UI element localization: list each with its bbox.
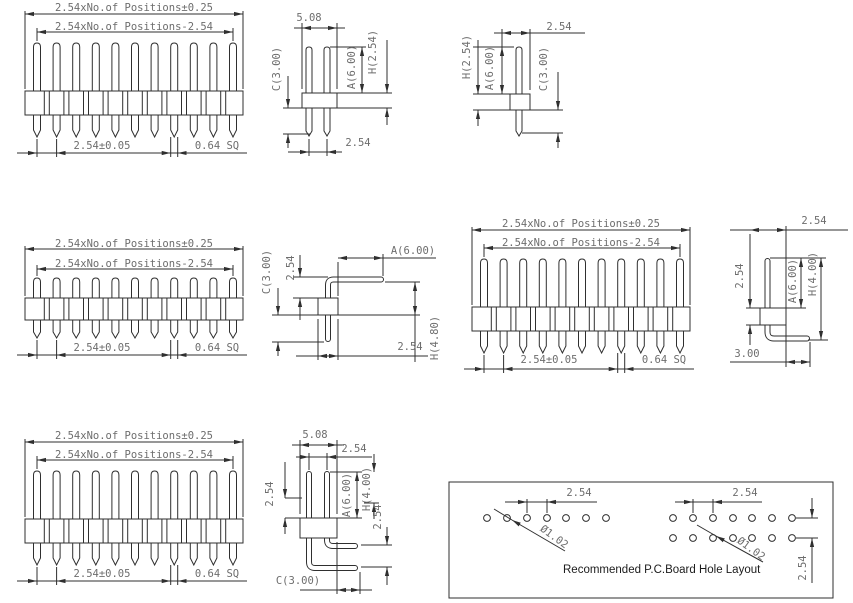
dim-label-row-pitch: 2.54 bbox=[797, 555, 809, 580]
dim-label-tail: 3.00 bbox=[734, 348, 759, 360]
insulator-body bbox=[510, 94, 530, 110]
hole bbox=[524, 515, 531, 522]
pcb-hole-layout: 2.54 Ø1.02 2.54 Ø1.02 2.54 Recommended P… bbox=[449, 482, 833, 598]
dim-label-inner: 2.54xNo.of Positions-2.54 bbox=[55, 258, 213, 270]
hole bbox=[484, 515, 491, 522]
side-view-right-angle-single: 2.54 2.54 A(6.00) H(4.00) 3.00 bbox=[730, 215, 848, 367]
dim-label-pitch: 2.54 bbox=[566, 487, 591, 499]
single-row-hole-pattern: 2.54 Ø1.02 bbox=[484, 487, 610, 551]
dim-label-h: H(2.54) bbox=[461, 35, 473, 79]
dim-label-a: A(6.00) bbox=[341, 473, 353, 517]
dim-label-right: 2.54 bbox=[372, 504, 384, 529]
hole bbox=[710, 515, 717, 522]
dim-label-a: A(6.00) bbox=[484, 46, 496, 90]
layout-border bbox=[449, 482, 833, 598]
insulator-body bbox=[760, 308, 786, 325]
dim-label-h: H(4.80) bbox=[429, 316, 441, 360]
dim-label-pitch: 2.54 bbox=[345, 137, 370, 149]
hole bbox=[789, 515, 796, 522]
hole bbox=[670, 535, 677, 542]
dim-label-overall: 2.54xNo.of Positions±0.25 bbox=[55, 2, 213, 14]
hole bbox=[603, 515, 610, 522]
hole bbox=[563, 515, 570, 522]
dim-label-width: 5.08 bbox=[302, 429, 327, 441]
hole bbox=[670, 515, 677, 522]
hole bbox=[583, 515, 590, 522]
dim-label-body: 2.54 bbox=[397, 341, 422, 353]
dim-label-pitch: 2.54 bbox=[546, 21, 571, 33]
hole bbox=[730, 515, 737, 522]
datasheet-page: 2.54xNo.of Positions±0.25 2.54xNo.of Pos… bbox=[0, 0, 853, 603]
dim-label-pitch: 2.54±0.05 bbox=[74, 342, 131, 354]
front-view-top: 2.54xNo.of Positions±0.25 2.54xNo.of Pos… bbox=[17, 2, 247, 157]
dim-label-pin-sq: 0.64 SQ bbox=[195, 140, 239, 152]
dim-label-overall: 2.54xNo.of Positions±0.25 bbox=[55, 430, 213, 442]
dim-label-inner: 2.54xNo.of Positions-2.54 bbox=[55, 449, 213, 461]
front-view-middle: 2.54xNo.of Positions±0.25 2.54xNo.of Pos… bbox=[17, 238, 247, 359]
dim-label-pitch: 2.54±0.05 bbox=[74, 140, 131, 152]
side-view-straight-single: 2.54 H(2.54) A(6.00) C(3.00) bbox=[461, 21, 585, 148]
dim-label-h: H(2.54) bbox=[367, 30, 379, 74]
dim-label-pin-sq: 0.64 SQ bbox=[195, 568, 239, 580]
hole bbox=[690, 515, 697, 522]
dim-label-overall: 2.54xNo.of Positions±0.25 bbox=[55, 238, 213, 250]
insulator-body bbox=[300, 518, 337, 538]
hole bbox=[749, 515, 756, 522]
hole bbox=[769, 515, 776, 522]
dim-label-c: C(3.00) bbox=[271, 47, 283, 91]
dim-label-inner: 2.54xNo.of Positions-2.54 bbox=[55, 21, 213, 33]
dim-label-riser: 2.54 bbox=[285, 255, 297, 280]
dim-label-a: A(6.00) bbox=[346, 45, 358, 89]
dim-label-c: C(3.00) bbox=[276, 575, 320, 587]
dim-label-pitch: 2.54±0.05 bbox=[521, 354, 578, 366]
dim-label-pin-sq: 0.64 SQ bbox=[642, 354, 686, 366]
insulator-body bbox=[302, 93, 337, 108]
dim-label-c: C(3.00) bbox=[538, 47, 550, 91]
dim-label-a: A(6.00) bbox=[391, 245, 435, 257]
dim-label-h: H(4.00) bbox=[807, 252, 819, 296]
dim-label-c: C(3.00) bbox=[261, 250, 273, 294]
dim-label-overall: 2.54xNo.of Positions±0.25 bbox=[502, 218, 660, 230]
dim-label-body: 2.54 bbox=[734, 263, 746, 288]
dim-label-pitch: 2.54 bbox=[732, 487, 757, 499]
hole bbox=[544, 515, 551, 522]
pin bbox=[516, 47, 522, 136]
side-view-right-angle-dual: 5.08 2.54 2.54 A(6.00) H(4.00) 2.54 C(3.… bbox=[264, 429, 392, 594]
dim-label-left: 2.54 bbox=[264, 481, 276, 506]
hole bbox=[690, 535, 697, 542]
pin bbox=[306, 47, 312, 136]
insulator-body bbox=[318, 298, 338, 315]
dim-label-row: 2.54 bbox=[341, 443, 366, 455]
dim-label-inner: 2.54xNo.of Positions-2.54 bbox=[502, 237, 660, 249]
front-view-middle-right: 2.54xNo.of Positions±0.25 2.54xNo.of Pos… bbox=[464, 218, 694, 373]
side-view-straight: 5.08 A(6.00) H(2.54) C(3.00) 2.54 bbox=[271, 12, 392, 156]
front-view-bottom: 2.54xNo.of Positions±0.25 2.54xNo.of Pos… bbox=[17, 430, 247, 585]
dim-label-top: 2.54 bbox=[801, 215, 826, 227]
dim-label-pin-sq: 0.64 SQ bbox=[195, 342, 239, 354]
dim-label-pitch: 2.54±0.05 bbox=[74, 568, 131, 580]
hole bbox=[769, 535, 776, 542]
hole bbox=[730, 535, 737, 542]
dim-label-width: 5.08 bbox=[296, 12, 321, 24]
technical-drawing: 2.54xNo.of Positions±0.25 2.54xNo.of Pos… bbox=[0, 0, 853, 603]
pin bbox=[324, 47, 330, 136]
dim-label-a: A(6.00) bbox=[787, 259, 799, 303]
dim-label-hole-dia: Ø1.02 bbox=[538, 523, 571, 551]
pcb-layout-title: Recommended P.C.Board Hole Layout bbox=[563, 564, 761, 576]
side-view-right-angle: A(6.00) 2.54 C(3.00) H(4.80) 2.54 bbox=[261, 245, 441, 362]
hole bbox=[789, 535, 796, 542]
